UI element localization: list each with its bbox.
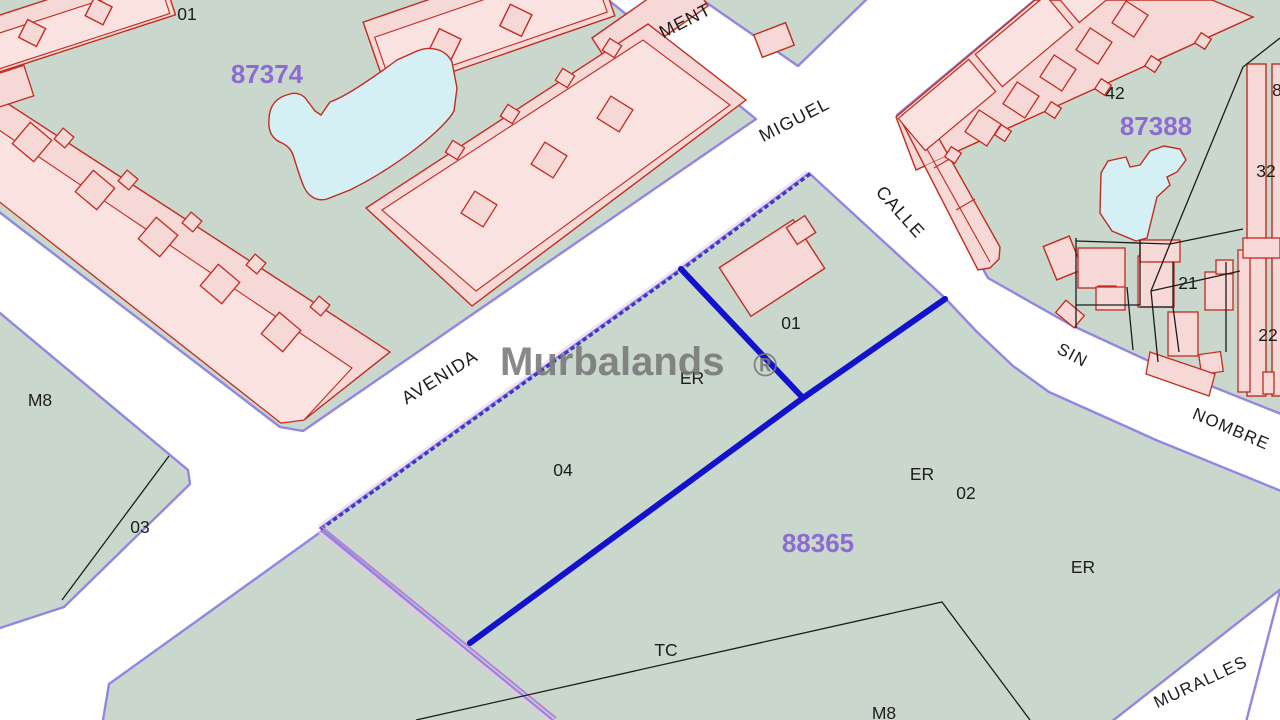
svg-text:21: 21 xyxy=(1178,273,1197,293)
svg-text:22: 22 xyxy=(1258,325,1277,345)
svg-text:03: 03 xyxy=(130,517,149,537)
svg-text:87374: 87374 xyxy=(231,59,304,89)
svg-text:ER: ER xyxy=(910,464,934,484)
svg-text:01: 01 xyxy=(781,313,800,333)
svg-text:ER: ER xyxy=(1071,557,1095,577)
svg-text:42: 42 xyxy=(1105,83,1124,103)
svg-text:02: 02 xyxy=(956,483,975,503)
svg-text:Murbalands: Murbalands xyxy=(500,340,724,384)
svg-text:®: ® xyxy=(753,346,777,383)
svg-text:32: 32 xyxy=(1256,161,1275,181)
svg-text:TC: TC xyxy=(654,640,677,660)
svg-text:8: 8 xyxy=(1272,80,1280,100)
svg-text:88365: 88365 xyxy=(782,528,854,558)
svg-text:87388: 87388 xyxy=(1120,111,1192,141)
svg-text:01: 01 xyxy=(177,4,196,24)
svg-text:M8: M8 xyxy=(872,703,896,720)
svg-text:M8: M8 xyxy=(28,390,52,410)
svg-text:04: 04 xyxy=(553,460,573,480)
